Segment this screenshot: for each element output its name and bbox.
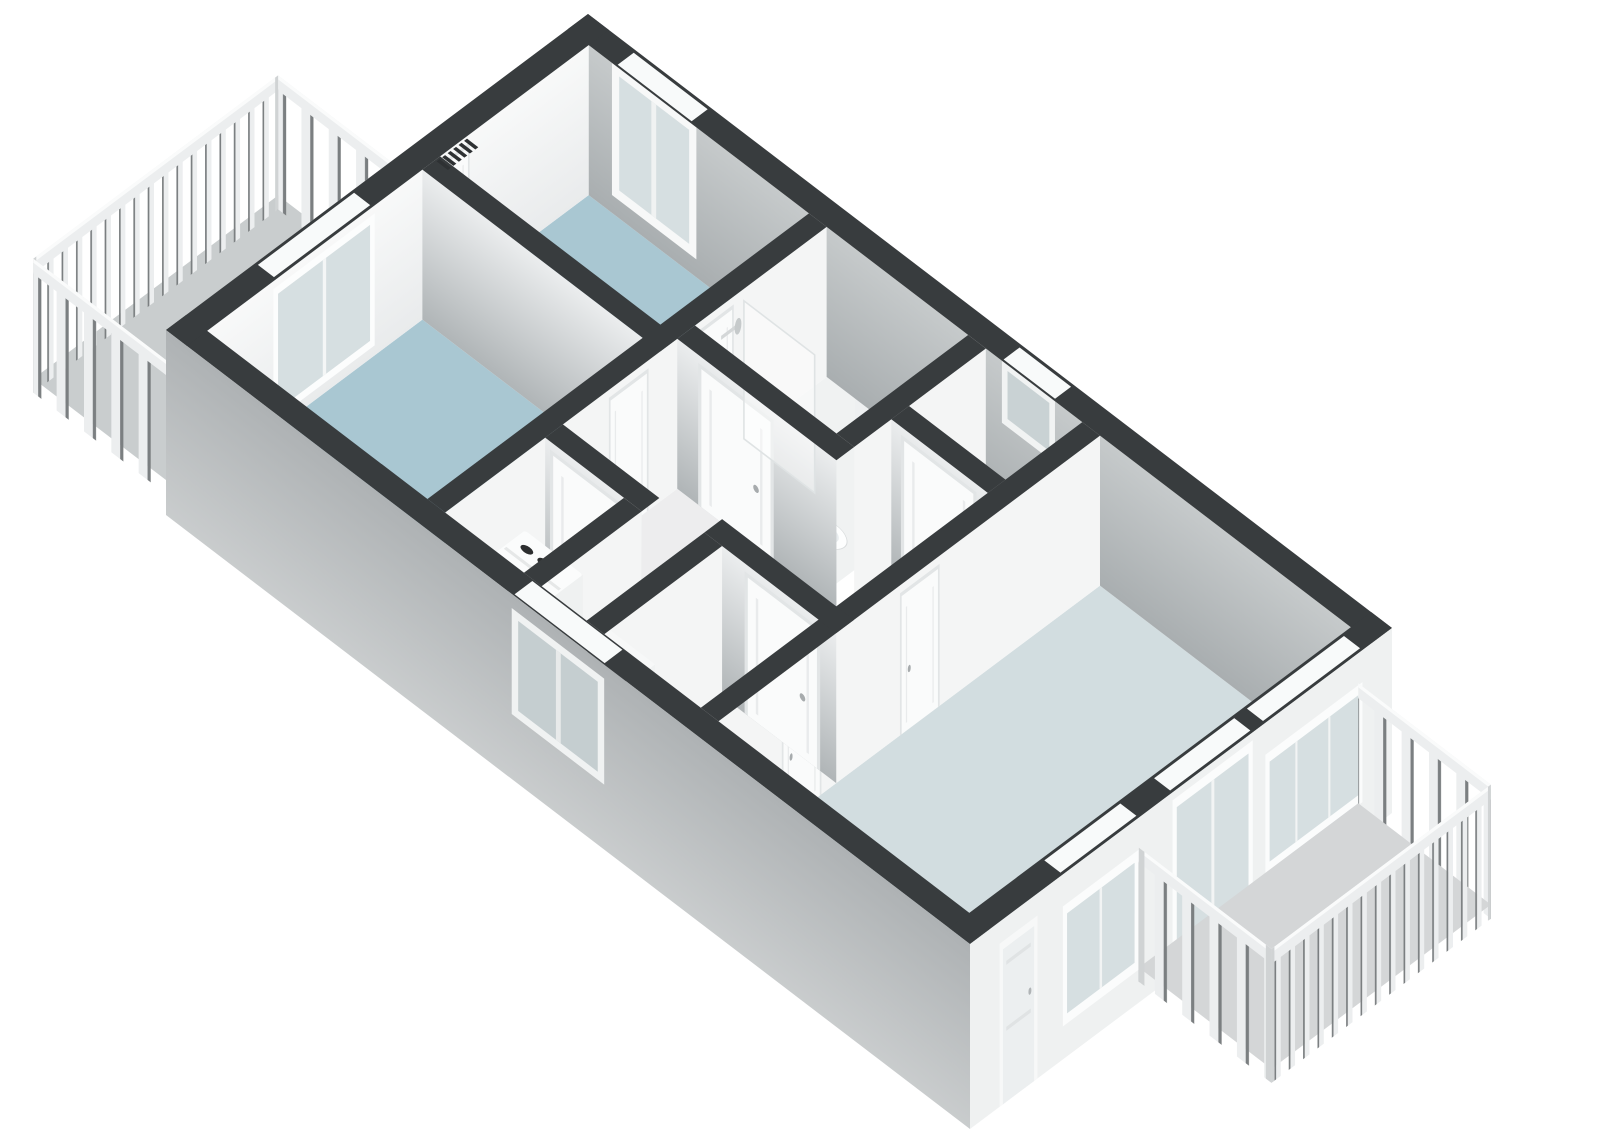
- hallway-living-door: [900, 564, 940, 736]
- floorplan-3d-render: [0, 0, 1600, 1131]
- floorplan-svg: [0, 0, 1600, 1131]
